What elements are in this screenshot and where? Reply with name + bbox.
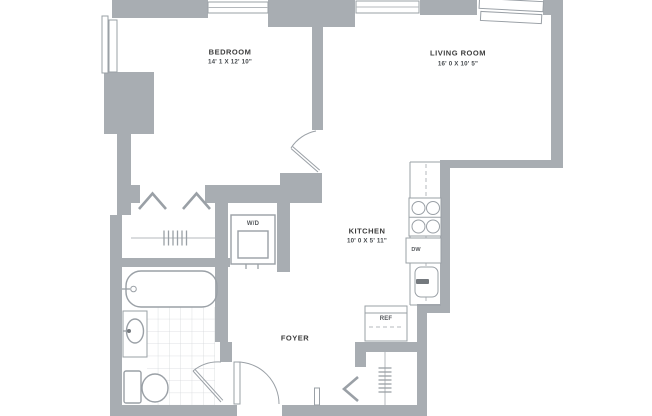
wall-segment (443, 160, 563, 168)
door-arc (237, 362, 279, 404)
floor-plan: BEDROOM 14' 1 X 12' 10" LIVING ROOM 16' … (0, 0, 652, 416)
wall-segment (417, 304, 427, 416)
closet-hanging-rod (131, 231, 215, 246)
wall-segment (110, 215, 122, 416)
bathtub (122, 271, 217, 307)
wall-segment (112, 0, 208, 18)
wall-segment (420, 0, 477, 15)
washer-dryer-label: W/D (247, 221, 259, 227)
door-arc (291, 131, 316, 148)
entry-door (234, 362, 279, 404)
bifold-door-icon (139, 194, 166, 210)
stove (409, 198, 441, 236)
closet-door-leaf (315, 388, 320, 405)
bedroom-west-window (102, 16, 117, 73)
bifold-door-icon (344, 377, 358, 401)
bedroom-label: BEDROOM (209, 48, 252, 57)
wall-segment (215, 267, 228, 342)
vanity-sink (123, 311, 147, 357)
wall-segment (117, 185, 140, 203)
toilet (124, 371, 168, 403)
wall-segment (220, 342, 232, 362)
kitchen-label: KITCHEN (349, 227, 386, 236)
wall-segment (110, 405, 237, 416)
wall-segment (355, 342, 366, 367)
dishwasher-label: DW (411, 247, 420, 253)
wall-segment (205, 185, 322, 203)
living-room-label: LIVING ROOM (430, 49, 486, 58)
wall-segment (551, 10, 563, 168)
wall-segment (282, 405, 427, 416)
wall-segment (104, 72, 154, 134)
kitchen-dims: 10' 0 X 5' 11" (347, 238, 387, 245)
floor-plan-drawing (0, 0, 652, 416)
wall-segment (277, 203, 290, 272)
bedroom-north-window (208, 2, 268, 13)
foyer-label: FOYER (281, 334, 309, 343)
wall-segment (312, 27, 323, 130)
wall-segment (110, 258, 230, 267)
entry-closet (315, 352, 392, 405)
kitchen-sink (415, 267, 438, 297)
closet-bifold-doors (139, 194, 210, 210)
living-room-dims: 16' 0 X 10' 5" (438, 61, 478, 68)
living-north-window-1 (356, 1, 419, 13)
living-north-window-2 (478, 0, 543, 24)
bedroom-door (291, 131, 320, 172)
refrigerator-label: REF (380, 316, 393, 322)
refrigerator (365, 306, 407, 341)
wall-segment (268, 0, 355, 27)
bedroom-dims: 14' 1 X 12' 10" (208, 59, 252, 66)
